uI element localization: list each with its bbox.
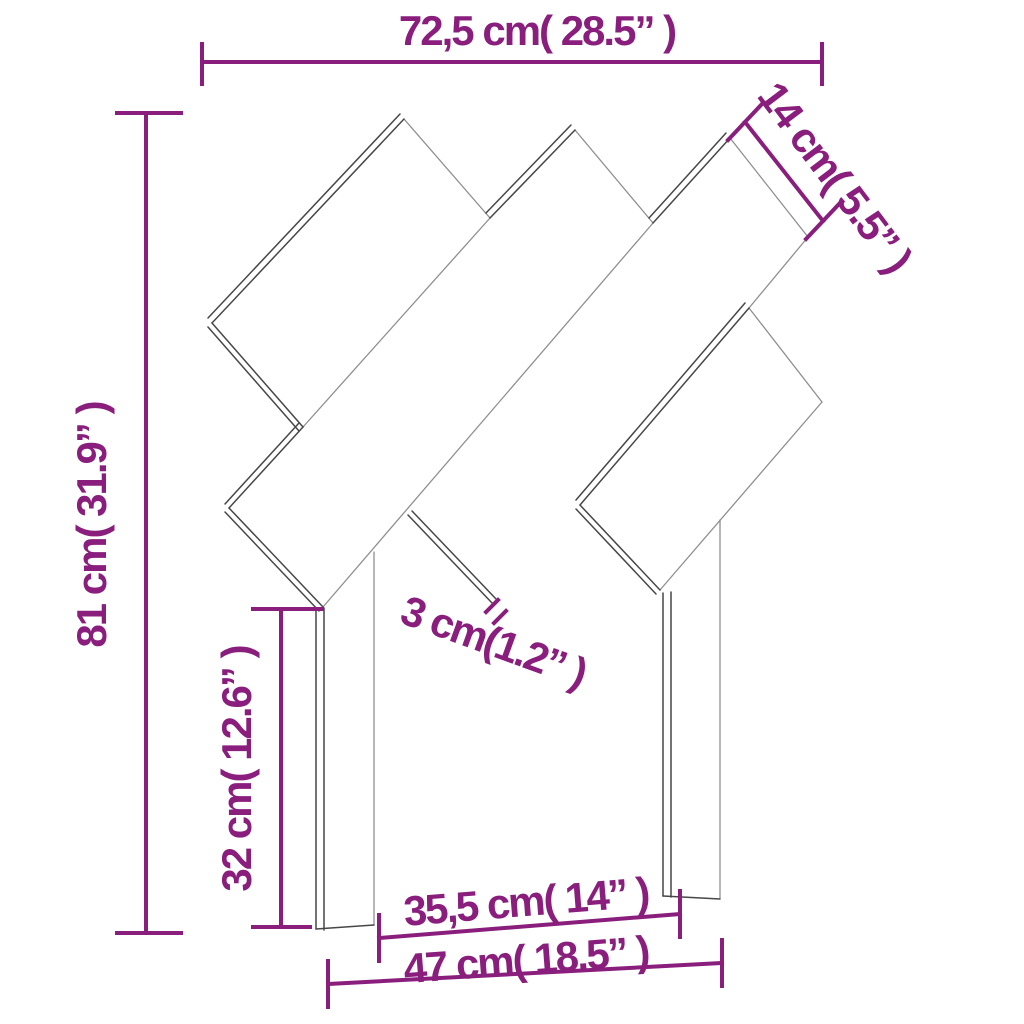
- board2-left-cut-thickness: [225, 512, 319, 611]
- board2-top-edge-thickness: [486, 125, 571, 213]
- board1-top-edge: [212, 119, 404, 323]
- board-width-label: 14 cm( 5.5” ): [749, 73, 921, 280]
- board2-right-cut-edge: [575, 130, 653, 223]
- board4-left-cut-thickness: [576, 509, 656, 594]
- board3-top-edge: [653, 138, 730, 223]
- board3-top-edge-thickness: [649, 133, 726, 218]
- board4-top-edge: [580, 308, 749, 505]
- dimension-labels: 72,5 cm( 28.5” ) 14 cm( 5.5” ) 81 cm( 31…: [68, 7, 921, 992]
- board2-board3-boundary-edge: [323, 223, 653, 607]
- board-face-edges: [303, 119, 822, 925]
- board1-board2-boundary-edge: [303, 218, 490, 427]
- diagram-canvas: 72,5 cm( 28.5” ) 14 cm( 5.5” ) 81 cm( 31…: [0, 0, 1024, 1024]
- board3-bottom-edge: [749, 237, 808, 308]
- headboard-dimension-diagram: 72,5 cm( 28.5” ) 14 cm( 5.5” ) 81 cm( 31…: [0, 0, 1024, 1024]
- board1-right-cut-edge: [404, 119, 490, 218]
- inner-leg-span-label: 35,5 cm( 14” ): [402, 868, 650, 935]
- board4-left-cut-edge: [580, 505, 660, 590]
- board2-top-edge: [490, 130, 575, 218]
- dimension-leg-height: [253, 609, 322, 927]
- top-width-label: 72,5 cm( 28.5” ): [399, 7, 675, 54]
- leg-height-label: 32 cm( 12.6” ): [213, 646, 260, 891]
- board1-left-cut-edge: [212, 323, 303, 427]
- board2-top-edge-lower-thickness: [225, 423, 299, 504]
- dim-tick: [486, 600, 498, 612]
- board-silhouette-edges: [208, 114, 749, 930]
- board4-right-cut-edge: [749, 308, 822, 402]
- outer-leg-span-label: 47 cm( 18.5” ): [402, 927, 650, 992]
- board4-bottom-edge: [660, 402, 822, 590]
- board2-top-edge-lower: [229, 427, 303, 508]
- total-height-label: 81 cm( 31.9” ): [68, 402, 115, 647]
- board4-top-edge-thickness: [576, 303, 745, 500]
- board3-left-cut-edge: [412, 511, 497, 600]
- dimension-total-height: [117, 113, 181, 933]
- board1-left-cut-thickness: [208, 327, 299, 431]
- board1-top-edge-thickness: [208, 114, 400, 318]
- board2-left-cut-edge: [229, 508, 323, 607]
